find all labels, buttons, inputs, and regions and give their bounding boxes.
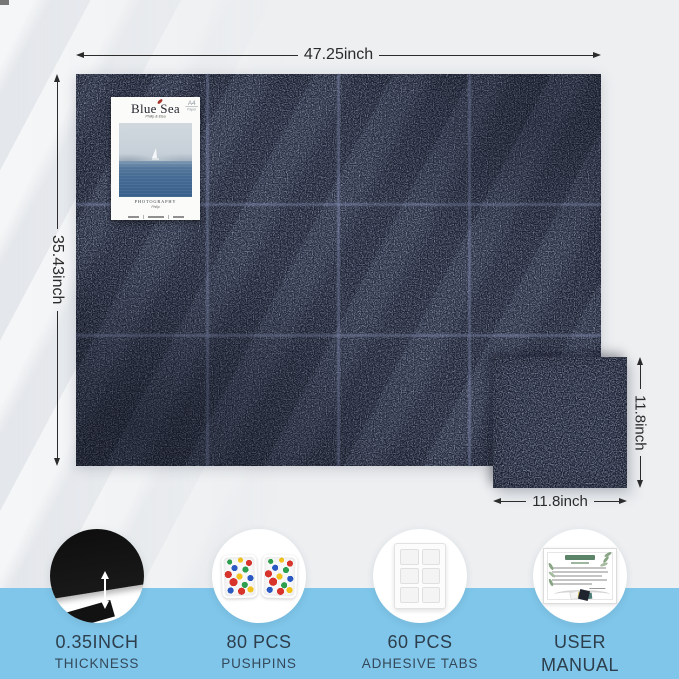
pushpin-box xyxy=(221,554,257,598)
sea xyxy=(119,161,192,197)
corner-artifact xyxy=(0,0,9,5)
arrow-up-icon xyxy=(637,357,643,365)
arrow-right-icon xyxy=(619,498,627,504)
arrow-right-icon xyxy=(593,52,601,58)
tile-height-label: 11.8inch xyxy=(632,395,649,451)
tile-seam-horizontal xyxy=(76,334,601,337)
board-width-label: 47.25inch xyxy=(304,46,373,64)
signature-line xyxy=(589,586,607,589)
thickness-arrow-icon xyxy=(104,578,106,602)
tile-seam-vertical xyxy=(337,74,340,466)
poster-caption: PHOTOGRAPHY xyxy=(131,200,180,203)
a4-paper-mark: A4 Paper xyxy=(185,100,198,113)
feature-label: MANUAL xyxy=(541,655,619,676)
feature-label: ADHESIVE TABS xyxy=(362,656,478,671)
feature-thickness: 0.35INCH THICKNESS xyxy=(22,529,172,671)
adhesive-tab-sheet xyxy=(394,543,446,609)
single-tile xyxy=(493,357,627,488)
board-width-dimension: 47.25inch xyxy=(76,47,601,63)
manual-title-banner xyxy=(565,555,595,560)
product-infographic: 47.25inch 35.43inch Blue Sea Philip & El… xyxy=(0,0,679,679)
feature-adhesive-tabs: 60 PCS ADHESIVE TABS xyxy=(345,529,495,671)
feature-value: 80 PCS xyxy=(226,632,291,653)
tile-width-label: 11.8inch xyxy=(532,493,588,510)
leaf-sprig-icon xyxy=(547,565,559,591)
feature-value: USER xyxy=(554,632,606,653)
felt-texture xyxy=(493,357,627,488)
tile-seam-vertical xyxy=(468,74,471,466)
feature-pushpins: 80 PCS PUSHPINS xyxy=(184,529,334,671)
pushpin-box xyxy=(261,554,297,598)
feature-value: 60 PCS xyxy=(387,632,452,653)
tile-width-dimension: 11.8inch xyxy=(493,493,627,509)
arrow-left-icon xyxy=(76,52,84,58)
felt-edge-closeup xyxy=(50,529,144,601)
leaf-sprig-icon xyxy=(598,553,612,569)
poster-meta-row xyxy=(111,215,200,219)
sea-photo xyxy=(119,123,192,197)
arrow-left-icon xyxy=(493,498,501,504)
sailboat-icon xyxy=(152,148,157,158)
board-height-dimension: 35.43inch xyxy=(49,74,65,466)
poster-subtitle: Philip & Elsa xyxy=(135,115,175,118)
arrow-down-icon xyxy=(54,458,60,466)
arrow-up-icon xyxy=(54,74,60,82)
feature-user-manual: USER MANUAL xyxy=(505,529,655,676)
board-height-label: 35.43inch xyxy=(48,235,66,304)
feature-label: PUSHPINS xyxy=(221,656,296,671)
adhesive-tabs-icon xyxy=(373,529,467,623)
poster: Blue Sea Philip & Elsa A4 Paper PHOTOGRA… xyxy=(111,97,200,220)
tile-height-dimension: 11.8inch xyxy=(632,357,648,488)
arrow-down-icon xyxy=(637,480,643,488)
feature-value: 0.35INCH xyxy=(55,632,138,653)
poster-caption-sub: Philip xyxy=(137,206,174,208)
pushpins-icon xyxy=(212,529,306,623)
manual-page xyxy=(543,548,617,604)
thickness-tile-icon xyxy=(50,529,144,623)
feature-label: THICKNESS xyxy=(55,656,139,671)
user-manual-icon xyxy=(533,529,627,623)
tile-seam-vertical xyxy=(206,74,209,466)
